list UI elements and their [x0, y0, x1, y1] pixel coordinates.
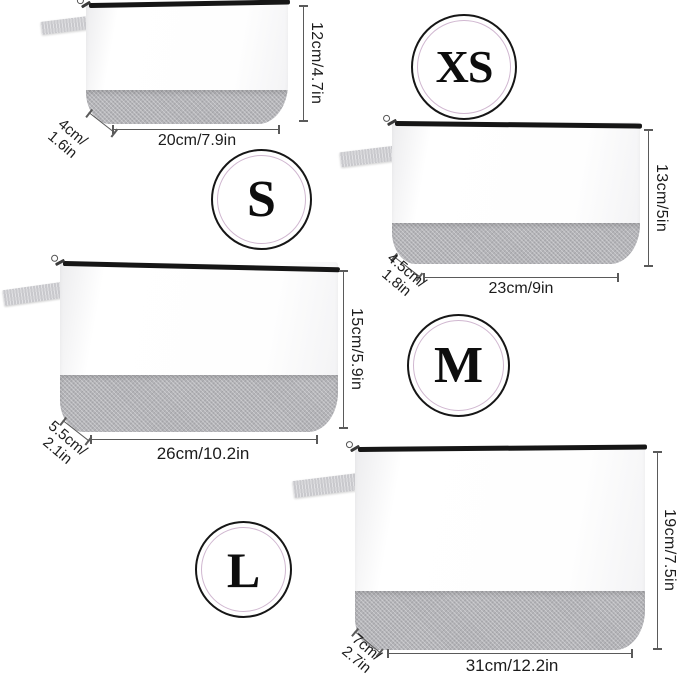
zipper-pull-icon [347, 442, 363, 454]
bag-body [392, 122, 640, 264]
width-label: 26cm/10.2in [128, 444, 278, 464]
size-badge-m: M [407, 314, 510, 417]
product-size-diagram: 12cm/4.7in 20cm/7.9in 4cm/ 1.6in XS 13cm… [0, 0, 679, 682]
height-label: 19cm/7.5in [659, 451, 679, 650]
bag-body [86, 4, 288, 124]
size-badge-xs: XS [411, 14, 517, 120]
bag-body [60, 262, 338, 432]
size-badge-s: S [211, 149, 312, 250]
bag-bottom-band [86, 90, 288, 124]
badge-inner-ring: XS [417, 20, 511, 114]
hang-tab [2, 282, 64, 306]
hang-tab [339, 146, 395, 168]
bag-xs [86, 4, 288, 124]
zipper-pull-icon [384, 116, 400, 128]
bag-l [355, 448, 645, 650]
bag-bottom-band [355, 591, 645, 650]
badge-inner-ring: S [217, 155, 306, 244]
zipper-pull-icon [78, 0, 94, 10]
width-label: 23cm/9in [446, 280, 596, 298]
bag-bottom-band [60, 375, 338, 432]
badge-letter: M [434, 340, 483, 392]
width-dimension-line [387, 653, 633, 654]
hang-tab [292, 473, 360, 498]
width-label: 31cm/12.2in [437, 656, 587, 676]
height-label: 15cm/5.9in [346, 270, 366, 429]
height-dimension-line [343, 270, 344, 429]
bag-m [60, 262, 338, 432]
width-dimension-line [112, 129, 280, 130]
bag-bottom-band [392, 223, 640, 264]
badge-inner-ring: L [201, 527, 286, 612]
width-dimension-line [90, 439, 318, 440]
badge-inner-ring: M [413, 320, 504, 411]
width-label: 20cm/7.9in [122, 132, 272, 150]
height-label: 13cm/5in [651, 129, 671, 267]
zipper-pull-icon [52, 256, 68, 268]
badge-letter: L [227, 545, 260, 595]
height-dimension-line [303, 5, 304, 122]
bag-s [392, 122, 640, 264]
width-dimension-line [423, 277, 619, 278]
hang-tab [40, 16, 88, 35]
badge-letter: S [247, 174, 276, 226]
bag-body [355, 448, 645, 650]
height-dimension-line [657, 451, 658, 650]
badge-letter: XS [436, 44, 493, 90]
size-badge-l: L [195, 521, 292, 618]
height-dimension-line [648, 129, 649, 267]
height-label: 12cm/4.7in [306, 5, 326, 122]
